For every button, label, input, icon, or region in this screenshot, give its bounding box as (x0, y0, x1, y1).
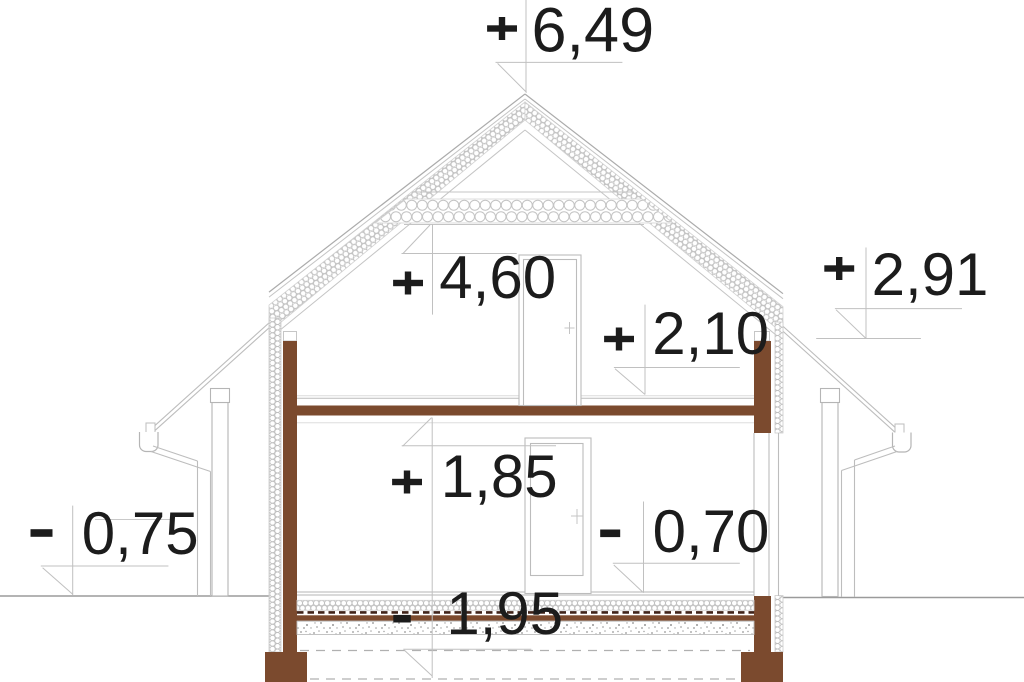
svg-text:0,75: 0,75 (82, 500, 199, 567)
svg-text:2,10: 2,10 (652, 300, 769, 367)
svg-text:2,91: 2,91 (872, 241, 989, 308)
svg-text:6,49: 6,49 (532, 0, 655, 66)
svg-text:1,85: 1,85 (441, 443, 558, 510)
svg-text:4,60: 4,60 (439, 244, 556, 311)
svg-text:1,95: 1,95 (446, 580, 563, 647)
svg-text:0,70: 0,70 (653, 498, 770, 565)
